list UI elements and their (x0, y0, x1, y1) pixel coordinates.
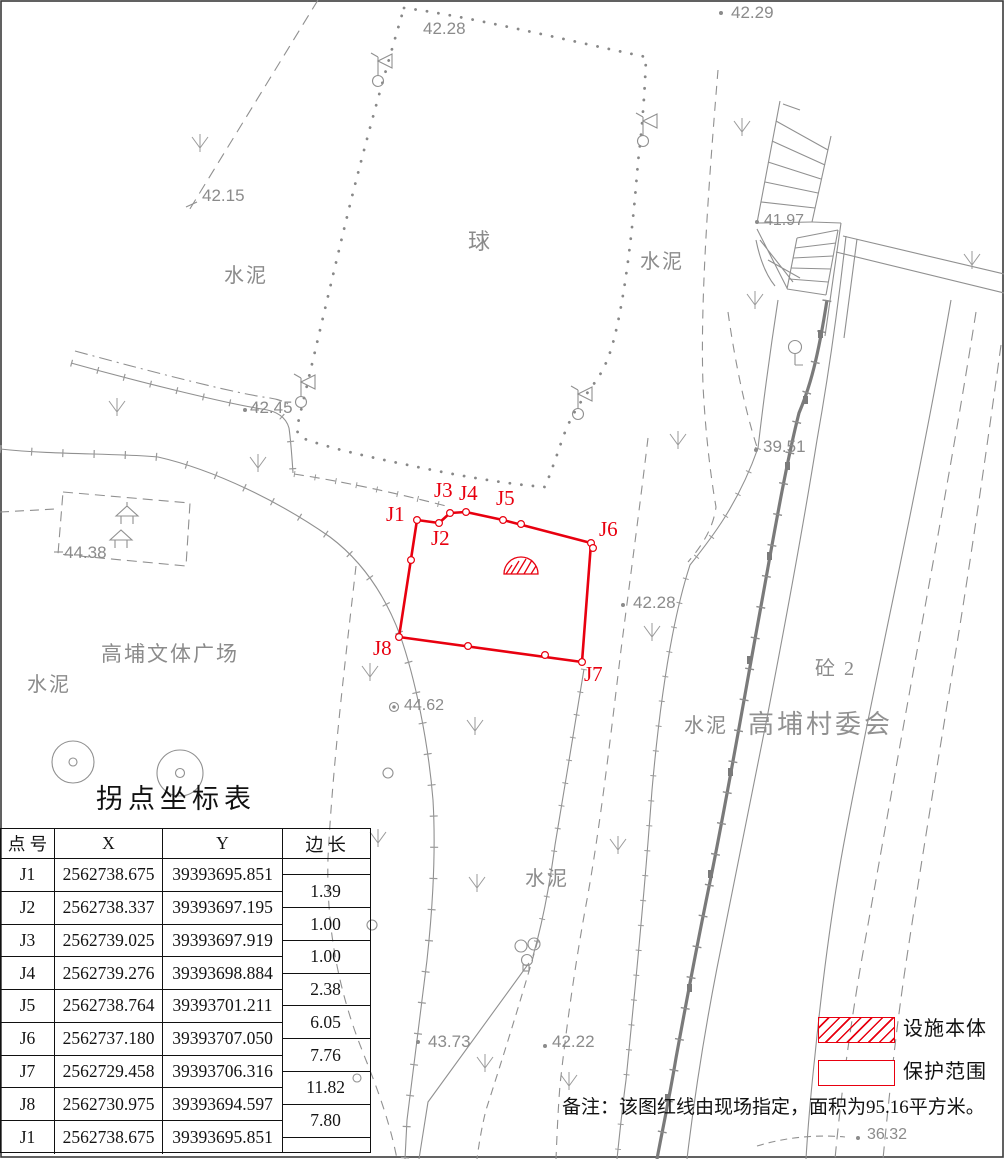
point-label-j6: J6 (599, 519, 618, 540)
legend-facility-swatch (818, 1017, 895, 1043)
table-row: J42562739.27639393698.884 (1, 957, 282, 990)
edge-length-cell: 2.38 (282, 974, 370, 1007)
pavilion-icon (110, 502, 138, 548)
note-text: 备注：该图红线由现场指定，面积为95.16平方米。 (562, 1098, 985, 1117)
table-row: J12562738.67539393695.851 (1, 859, 282, 892)
spot-elevation-label: 41.97 (764, 213, 804, 229)
edge-length-cell: 1.00 (282, 941, 370, 974)
facility-dome-icon (504, 557, 538, 574)
survey-map-page: 42.29 42.28 42.15 41.97 42.45 39.51 44.3… (0, 0, 1004, 1159)
building-label: 砼 2 (815, 659, 856, 679)
edge-length-cell: 7.80 (282, 1105, 370, 1138)
committee-label: 高埔村委会 (748, 712, 893, 738)
surface-label-cement: 水泥 (684, 716, 728, 736)
col-header-x: X (55, 829, 163, 858)
point-label-j7: J7 (584, 664, 603, 685)
table-row: J82562730.97539393694.597 (1, 1088, 282, 1121)
table-row: J22562738.33739393697.195 (1, 892, 282, 925)
dashed-boundary-nw (188, 0, 318, 212)
legend-protection-label: 保护范围 (903, 1062, 987, 1082)
surface-label-cement: 水泥 (640, 252, 684, 272)
point-label-j8: J8 (373, 638, 392, 659)
table-row: J72562729.45839393706.316 (1, 1056, 282, 1089)
benchmark-marker (390, 703, 399, 712)
spot-elevation-label: 43.73 (428, 1033, 471, 1050)
coordinate-table: 点 号 X Y J12562738.67539393695.851 J22562… (0, 828, 372, 1153)
spot-elevation-label: 39.51 (763, 438, 806, 455)
table-title: 拐点坐标表 (96, 786, 256, 813)
road-west (71, 351, 446, 506)
surface-label-cement: 水泥 (224, 266, 268, 286)
spot-elevation-label: 42.28 (633, 594, 676, 611)
legend-protection-swatch (818, 1060, 895, 1086)
point-label-j3: J3 (434, 480, 453, 501)
table-row: J12562738.67539393695.851 (1, 1121, 282, 1154)
protection-polygon (396, 509, 597, 666)
spot-elevation-label: 42.22 (552, 1033, 595, 1050)
spot-elevation-label: 36.32 (867, 1127, 907, 1143)
point-label-j5: J5 (496, 488, 515, 509)
col-header-y: Y (163, 829, 282, 858)
street-lamp-icon (789, 341, 804, 366)
table-row: J62562737.18039393707.050 (1, 1023, 282, 1056)
edge-length-cell: 1.00 (282, 908, 370, 941)
surface-label-cement: 水泥 (27, 675, 71, 695)
spot-elevation-label: 42.45 (250, 399, 293, 416)
point-label-j4: J4 (459, 483, 478, 504)
edge-length-cell: 1.39 (282, 875, 370, 908)
coordinate-table-main: 点 号 X Y J12562738.67539393695.851 J22562… (0, 828, 283, 1153)
legend-facility-label: 设施本体 (903, 1019, 987, 1039)
edge-length-cell: 7.76 (282, 1039, 370, 1072)
point-label-j1: J1 (386, 504, 405, 525)
point-label-j2: J2 (431, 528, 450, 549)
spot-elevation-label: 42.15 (202, 187, 245, 204)
table-row: J32562739.02539393697.919 (1, 925, 282, 958)
plaza-label: 高埔文体广场 (101, 644, 239, 665)
spot-elevation-label: 42.28 (423, 20, 466, 37)
edge-length-cell: 11.82 (282, 1072, 370, 1105)
table-header-row: 点 号 X Y (1, 829, 282, 859)
col-header-point: 点 号 (1, 829, 55, 858)
spot-elevation-label: 42.29 (731, 4, 774, 21)
edge-length-column: 边 长 1.39 1.00 1.00 2.38 6.05 7.76 11.82 … (282, 828, 371, 1153)
col-header-edge: 边 长 (282, 829, 370, 859)
table-row: J52562738.76439393701.211 (1, 990, 282, 1023)
surface-label-cement: 水泥 (525, 869, 569, 889)
spot-elevation-label: 44.62 (404, 698, 444, 714)
spot-elevation-label: 44.38 (64, 544, 107, 561)
edge-length-cell: 6.05 (282, 1006, 370, 1039)
court-label: 球 (468, 231, 492, 253)
